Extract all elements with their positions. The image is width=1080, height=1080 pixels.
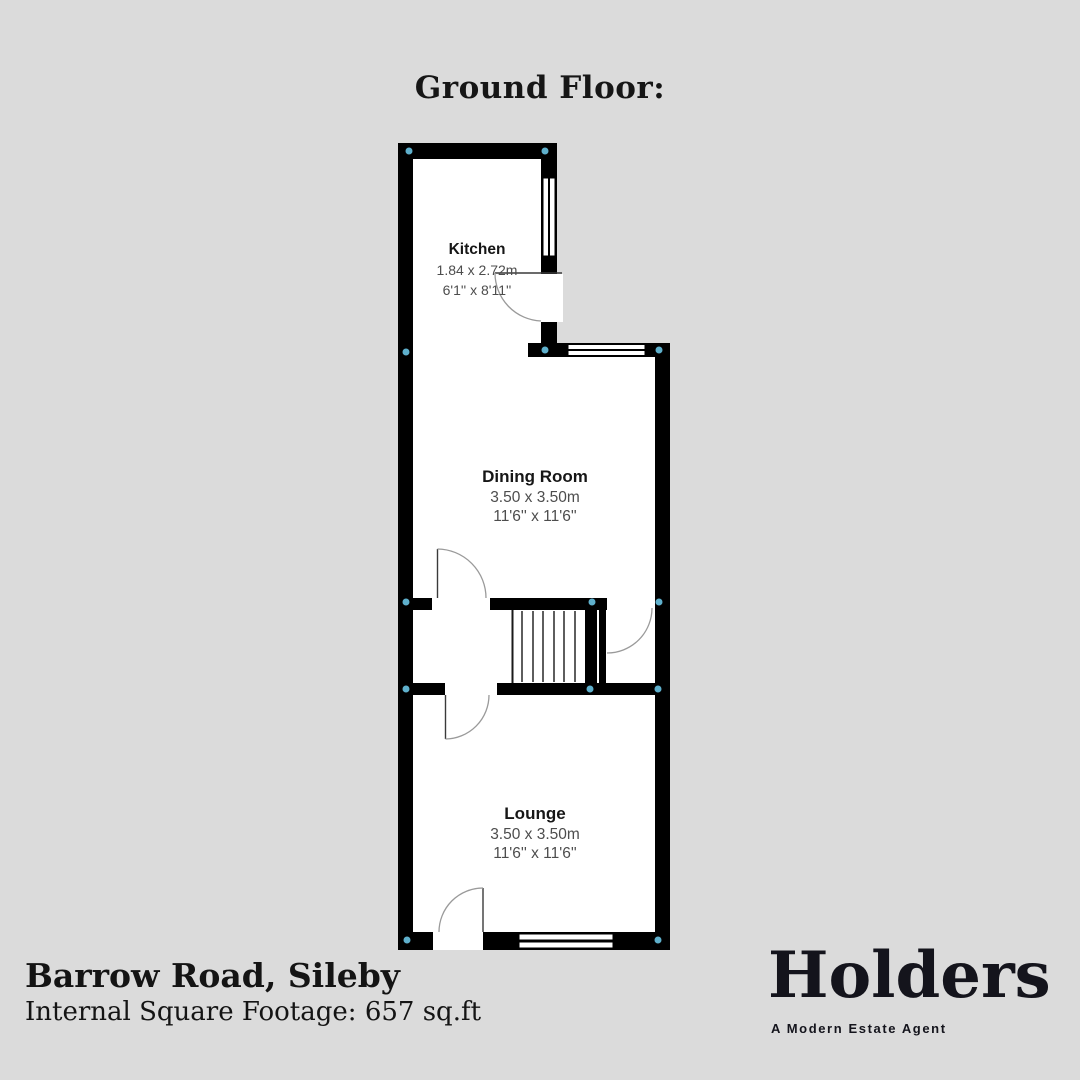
room-label-lounge: Lounge 3.50 x 3.50m 11'6'' x 11'6'' (435, 803, 635, 863)
room-name: Kitchen (377, 240, 577, 260)
brand-tagline: A Modern Estate Agent (771, 1021, 947, 1036)
room-dim-imperial: 11'6'' x 11'6'' (435, 507, 635, 526)
internal-square-footage: Internal Square Footage: 657 sq.ft (25, 997, 481, 1027)
room-name: Lounge (435, 803, 635, 825)
room-dim-metric: 3.50 x 3.50m (435, 488, 635, 507)
page-title: Ground Floor: (0, 70, 1080, 106)
room-label-kitchen: Kitchen 1.84 x 2.72m 6'1'' x 8'11'' (377, 240, 577, 300)
room-dim-imperial: 6'1'' x 8'11'' (377, 280, 577, 300)
room-label-dining-room: Dining Room 3.50 x 3.50m 11'6'' x 11'6'' (435, 466, 635, 526)
dining-window (566, 343, 647, 357)
brand-logo: Holders (768, 944, 1051, 1008)
room-dim-metric: 3.50 x 3.50m (435, 825, 635, 844)
property-address: Barrow Road, Sileby (25, 956, 400, 995)
lounge-window (517, 932, 615, 950)
room-dim-imperial: 11'6'' x 11'6'' (435, 844, 635, 863)
room-name: Dining Room (435, 466, 635, 488)
room-dim-metric: 1.84 x 2.72m (377, 260, 577, 280)
